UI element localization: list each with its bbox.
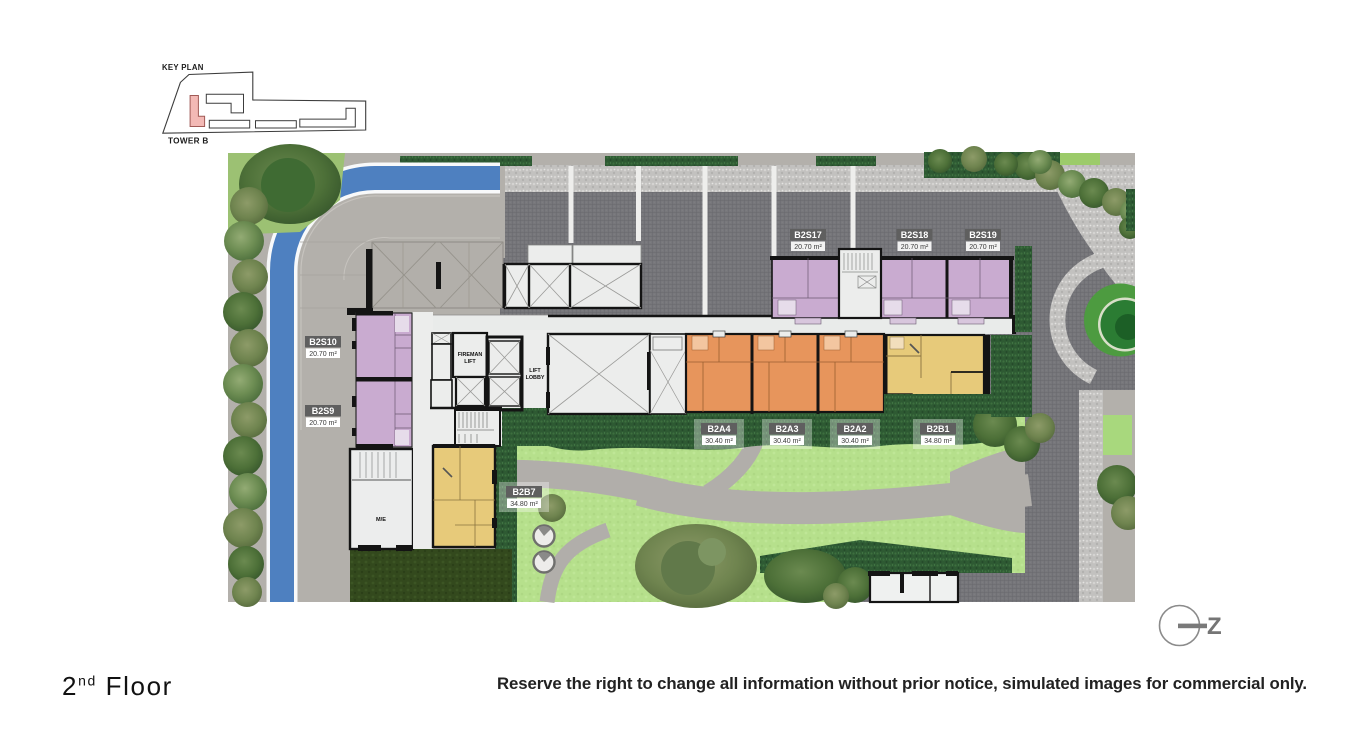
svg-text:34.80 m²: 34.80 m² xyxy=(924,438,952,445)
svg-text:20.70 m²: 20.70 m² xyxy=(309,420,337,427)
svg-text:20.70 m²: 20.70 m² xyxy=(901,244,929,251)
svg-text:M/E: M/E xyxy=(376,517,386,523)
svg-text:LIFT: LIFT xyxy=(529,368,541,374)
svg-text:B2A2: B2A2 xyxy=(843,424,866,434)
svg-text:TOWER B: TOWER B xyxy=(168,137,209,146)
svg-text:LIFT: LIFT xyxy=(464,359,476,365)
svg-text:B2B7: B2B7 xyxy=(512,487,535,497)
svg-text:B2A3: B2A3 xyxy=(775,424,798,434)
svg-text:B2A4: B2A4 xyxy=(707,424,730,434)
svg-text:FIREMAN: FIREMAN xyxy=(458,352,483,358)
svg-text:20.70 m²: 20.70 m² xyxy=(969,244,997,251)
svg-text:B2B1: B2B1 xyxy=(926,424,949,434)
svg-text:KEY PLAN: KEY PLAN xyxy=(162,63,204,72)
svg-text:LOBBY: LOBBY xyxy=(526,375,545,381)
svg-text:B2S10: B2S10 xyxy=(309,337,337,347)
svg-text:Z: Z xyxy=(1207,613,1222,640)
svg-text:30.40 m²: 30.40 m² xyxy=(773,438,801,445)
svg-text:20.70 m²: 20.70 m² xyxy=(309,351,337,358)
svg-text:B2S17: B2S17 xyxy=(794,230,822,240)
svg-text:30.40 m²: 30.40 m² xyxy=(841,438,869,445)
svg-text:30.40 m²: 30.40 m² xyxy=(705,438,733,445)
svg-text:Reserve the right to change al: Reserve the right to change all informat… xyxy=(497,674,1307,693)
svg-text:34.80 m²: 34.80 m² xyxy=(510,501,538,508)
svg-text:B2S18: B2S18 xyxy=(901,230,929,240)
svg-text:20.70 m²: 20.70 m² xyxy=(794,244,822,251)
svg-text:B2S9: B2S9 xyxy=(312,406,335,416)
svg-text:B2S19: B2S19 xyxy=(969,230,997,240)
